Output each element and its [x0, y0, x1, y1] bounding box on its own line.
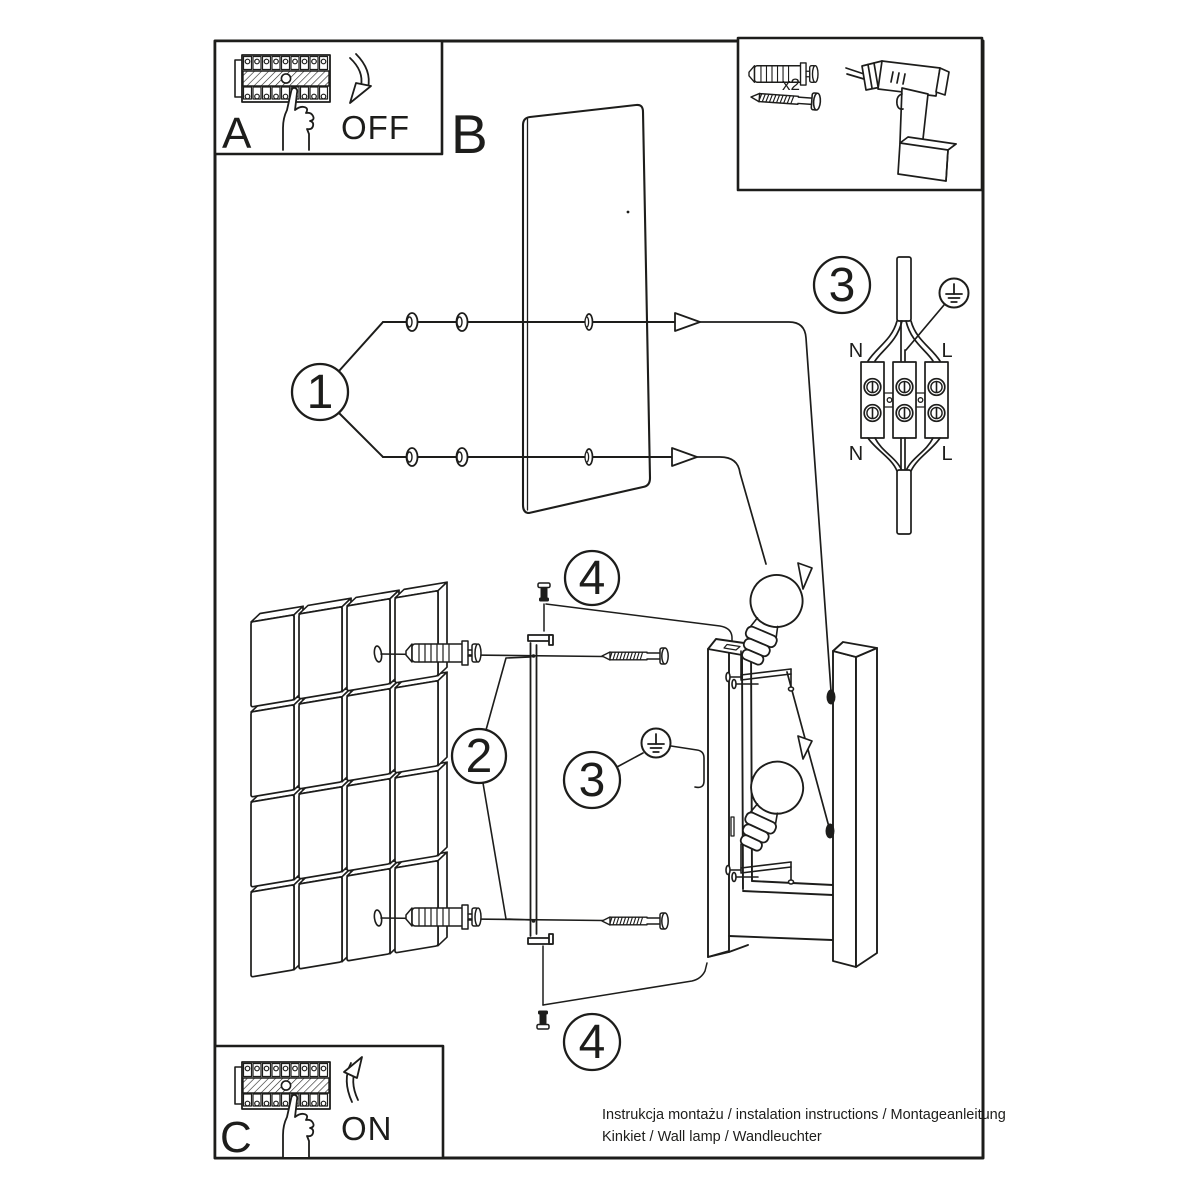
wall-block	[347, 689, 390, 781]
leader-line	[546, 604, 732, 646]
wall-block	[347, 869, 390, 961]
step-4-number-bottom: 4	[579, 1016, 606, 1069]
cable-bottom	[897, 470, 911, 534]
wall-block-side	[438, 762, 447, 856]
wall-block	[299, 607, 342, 699]
wall-block-side	[438, 672, 447, 766]
leader-line	[543, 963, 707, 1005]
guide-line	[697, 457, 766, 564]
lamp-side-board	[833, 651, 856, 967]
wire	[906, 321, 933, 361]
shelf-edge	[743, 891, 833, 895]
board-edge	[742, 655, 743, 889]
wall-block	[395, 591, 438, 683]
cover-plate	[523, 105, 700, 513]
wire-label-l-bottom: L	[941, 443, 952, 465]
wall-block	[251, 795, 294, 887]
cable-top	[897, 257, 911, 321]
step-4-number-top: 4	[579, 552, 606, 605]
manual-drawing: x2	[0, 0, 1200, 1200]
mount-hole-dot	[826, 824, 835, 839]
wall-block	[299, 787, 342, 879]
plate-mark	[627, 211, 630, 214]
wire-label-n-bottom: N	[849, 443, 863, 465]
wall-block	[395, 681, 438, 773]
leader-line	[339, 413, 383, 457]
lamp-side-board-side	[856, 648, 877, 967]
plate-b-label: B	[451, 103, 488, 165]
breaker-panel-icon	[235, 1062, 330, 1109]
shelf-edge	[729, 936, 832, 940]
step4-cover-screws	[537, 551, 732, 1070]
footer-line2: Kinkiet / Wall lamp / Wandleuchter	[602, 1129, 822, 1145]
leader-line	[617, 753, 643, 767]
leader-line	[483, 783, 531, 920]
wire	[875, 438, 902, 471]
wall-block	[251, 615, 294, 707]
lamp-back-board	[708, 645, 729, 957]
board-edge	[729, 945, 748, 952]
wire	[911, 438, 940, 471]
terminal-block	[893, 362, 916, 438]
wall-block	[251, 885, 294, 977]
step-3-number-wiring: 3	[829, 259, 856, 312]
step-2-number: 2	[466, 730, 493, 783]
arrow-right-icon	[675, 313, 700, 331]
wall-block	[395, 861, 438, 953]
board-slot	[731, 817, 734, 836]
wall-block	[299, 697, 342, 789]
wall-block	[251, 705, 294, 797]
footer-line1: Instrukcja montażu / instalation instruc…	[602, 1107, 1006, 1123]
wall-block	[299, 877, 342, 969]
wall-block	[395, 771, 438, 863]
on-label: ON	[341, 1110, 393, 1147]
wire-label-l-top: L	[941, 340, 952, 362]
anchor-quantity-label: x2	[782, 75, 800, 94]
panel-c-label: C	[220, 1113, 252, 1162]
wire	[868, 438, 897, 471]
wall-block-side	[438, 852, 447, 946]
arrow-down-icon	[798, 563, 812, 589]
step1-washers	[292, 313, 675, 466]
breaker-panel-icon	[235, 55, 330, 102]
leader-line	[339, 322, 383, 371]
off-label: OFF	[341, 109, 410, 146]
plate-hole-mark	[585, 314, 593, 465]
panel-a-label: A	[222, 109, 252, 158]
step-1-number: 1	[307, 366, 334, 419]
wire-label-n-top: N	[849, 340, 863, 362]
wire	[906, 438, 933, 471]
arrow-right-icon	[672, 448, 697, 466]
terminal-block	[861, 362, 884, 438]
mounting-bracket	[528, 635, 553, 944]
leader-line	[671, 746, 704, 787]
wire	[875, 321, 902, 361]
instruction-sheet: x2	[0, 0, 1200, 1200]
leader-line	[486, 657, 531, 730]
step-3-number-center: 3	[579, 754, 606, 807]
mount-hole-dot	[827, 690, 836, 705]
wall-block	[347, 779, 390, 871]
tools-box: x2	[738, 38, 982, 190]
lamp-fixture	[708, 563, 877, 967]
wall-block	[347, 599, 390, 691]
terminal-block	[925, 362, 948, 438]
